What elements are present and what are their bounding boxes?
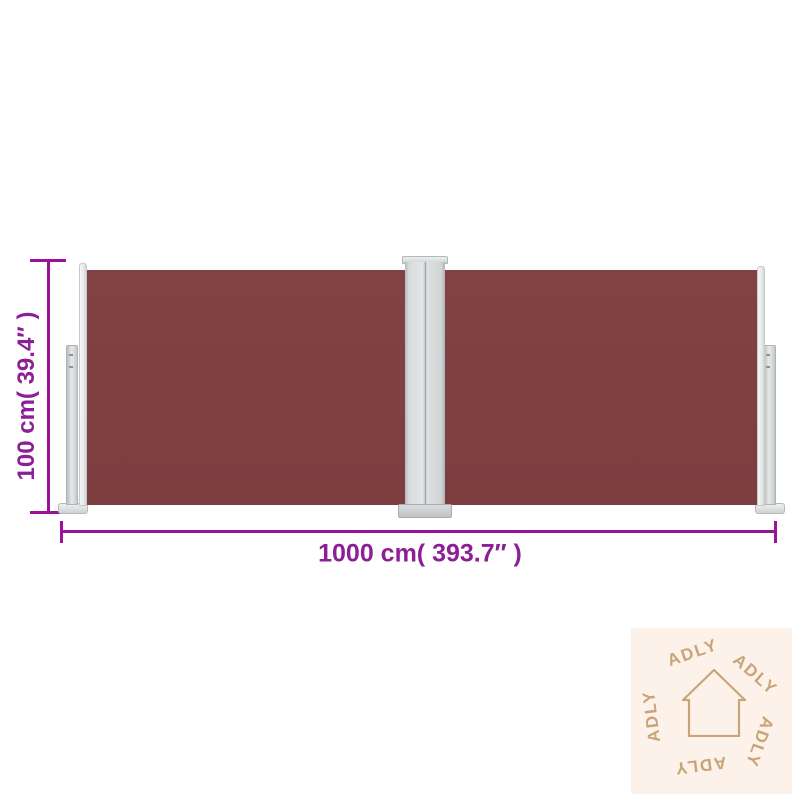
watermark-word: ADLY (673, 752, 728, 778)
brand-watermark: ADLY ADLY ADLY ADLY ADLY (631, 628, 792, 794)
height-dimension-line (47, 260, 50, 514)
center-cassette-seam (425, 262, 426, 506)
width-dimension-right-cap (774, 521, 777, 543)
height-dimension-label: 100 cm( 39.4″ ) (13, 312, 41, 481)
right-awning-panel (445, 270, 757, 505)
left-post-clip (69, 354, 73, 368)
center-cassette-post (405, 262, 445, 506)
watermark-word: ADLY (665, 635, 721, 671)
width-dimension-line (61, 530, 777, 533)
left-awning-panel (87, 270, 405, 505)
right-post-clip (766, 354, 770, 368)
left-support-post (66, 345, 78, 505)
width-dimension-label: 1000 cm( 393.7″ ) (318, 540, 522, 569)
product-image: 100 cm( 39.4″ ) 1000 cm( 393.7″ ) ADLY A… (0, 0, 800, 800)
right-end-rail (757, 266, 765, 506)
watermark-word: ADLY (639, 689, 665, 744)
left-end-rail (79, 263, 87, 506)
watermark-word: ADLY (741, 714, 778, 770)
house-icon (682, 669, 746, 737)
center-cassette-base (398, 504, 452, 518)
